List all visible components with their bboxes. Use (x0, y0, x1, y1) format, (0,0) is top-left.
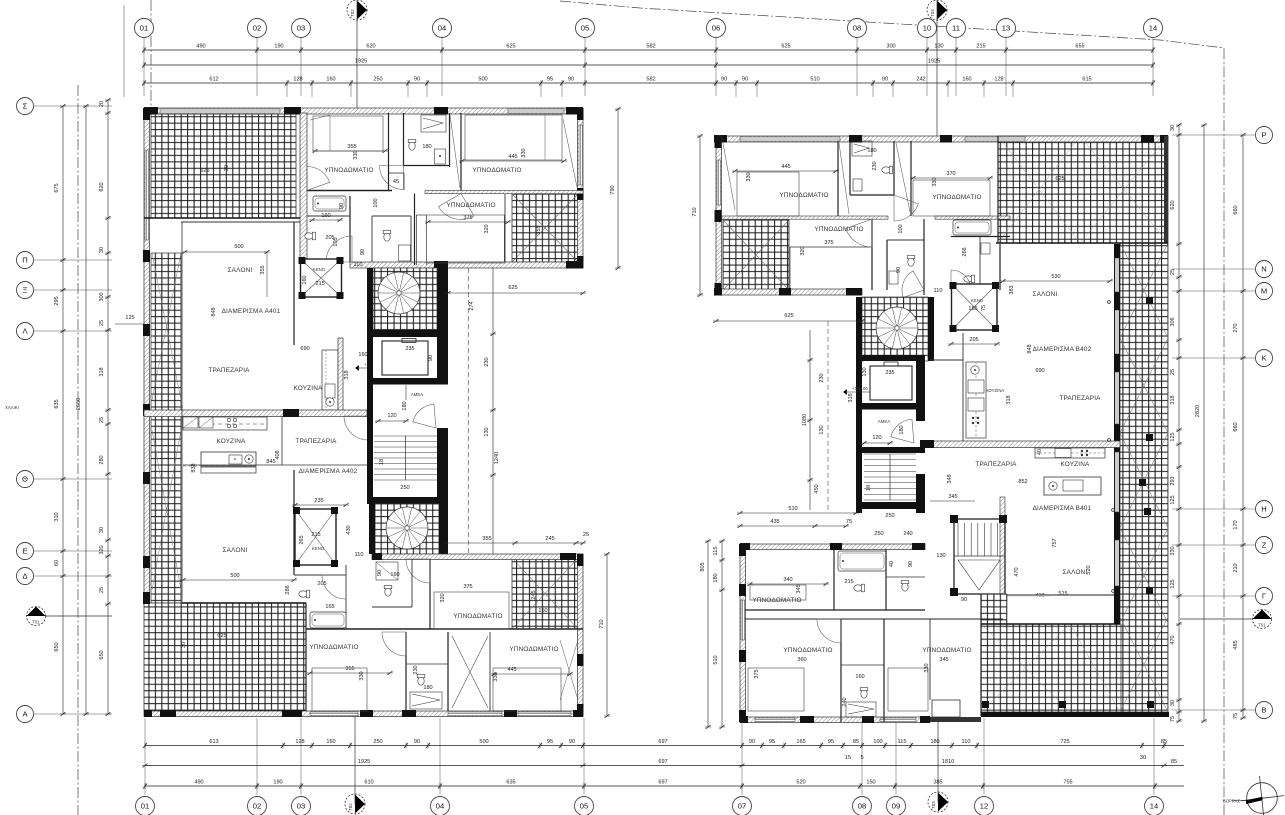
svg-text:370: 370 (946, 171, 955, 177)
svg-text:230: 230 (872, 161, 878, 170)
svg-text:Ε: Ε (22, 547, 27, 556)
svg-text:180: 180 (423, 685, 432, 691)
svg-text:90: 90 (896, 267, 902, 273)
svg-text:40: 40 (1037, 449, 1043, 455)
svg-text:128: 128 (994, 77, 1003, 83)
svg-text:180: 180 (867, 148, 876, 154)
svg-text:ΚΟΥΖΙΝΑ: ΚΟΥΖΙΝΑ (1060, 461, 1090, 468)
svg-text:165: 165 (325, 604, 334, 610)
svg-text:Σ: Σ (23, 102, 28, 111)
svg-text:490: 490 (194, 780, 203, 786)
svg-text:170: 170 (1233, 520, 1239, 529)
svg-text:250: 250 (874, 531, 883, 537)
svg-text:230: 230 (484, 357, 490, 366)
svg-text:T02: T02 (350, 9, 355, 17)
svg-text:160: 160 (326, 739, 335, 745)
svg-text:128: 128 (295, 739, 304, 745)
svg-text:01: 01 (141, 802, 149, 811)
svg-text:1240: 1240 (494, 452, 500, 464)
svg-text:330: 330 (932, 177, 938, 186)
svg-text:150: 150 (538, 608, 547, 614)
svg-text:ΥΠΝΟΔΩΜΑΤΙΟ: ΥΠΝΟΔΩΜΑΤΙΟ (814, 226, 863, 233)
svg-text:620: 620 (366, 44, 375, 50)
svg-text:805: 805 (700, 562, 706, 571)
svg-text:838: 838 (191, 463, 197, 472)
svg-text:ΣΑΛΟΝΙ: ΣΑΛΟΝΙ (223, 547, 248, 554)
svg-text:ΥΠΝΟΔΩΜΑΤΙΟ: ΥΠΝΟΔΩΜΑΤΙΟ (324, 167, 373, 174)
svg-text:235: 235 (314, 498, 323, 504)
svg-text:1925: 1925 (355, 59, 367, 65)
svg-text:215: 215 (976, 44, 985, 50)
svg-text:ΥΠΝΟΔΩΜΑΤΙΟ: ΥΠΝΟΔΩΜΑΤΙΟ (472, 167, 521, 174)
svg-text:318: 318 (344, 370, 350, 379)
svg-text:360: 360 (797, 657, 806, 663)
svg-text:690: 690 (300, 346, 309, 352)
svg-text:Δ: Δ (22, 572, 27, 581)
svg-text:180: 180 (422, 144, 431, 150)
svg-text:15: 15 (845, 755, 851, 761)
svg-text:130: 130 (934, 44, 943, 50)
svg-text:45: 45 (393, 179, 399, 185)
svg-text:615: 615 (1082, 77, 1091, 83)
svg-text:150: 150 (866, 780, 875, 786)
svg-text:697: 697 (658, 780, 667, 786)
svg-text:130: 130 (936, 553, 945, 559)
svg-text:625: 625 (508, 285, 517, 291)
svg-text:03: 03 (297, 802, 305, 811)
svg-text:293: 293 (1170, 476, 1176, 485)
svg-text:06: 06 (712, 24, 720, 33)
svg-text:215: 215 (844, 579, 853, 585)
svg-text:90: 90 (428, 355, 434, 361)
svg-text:320: 320 (800, 246, 806, 255)
svg-text:60: 60 (54, 560, 60, 566)
svg-text:205: 205 (317, 581, 326, 587)
svg-text:1925: 1925 (358, 759, 370, 765)
svg-text:330: 330 (746, 172, 752, 181)
svg-text:ΣΑΛΟΝΙ: ΣΑΛΟΝΙ (228, 267, 253, 274)
svg-text:ΥΠΝΟΔΩΜΑΤΙΟ: ΥΠΝΟΔΩΜΑΤΙΟ (932, 194, 981, 201)
svg-text:ΔΙΑΜΕΡΙΣΜΑ A402: ΔΙΑΜΕΡΙΣΜΑ A402 (299, 468, 358, 475)
svg-text:190: 190 (274, 44, 283, 50)
svg-text:318: 318 (1170, 395, 1176, 404)
svg-text:270: 270 (1233, 323, 1239, 332)
svg-text:90: 90 (360, 249, 366, 255)
svg-text:95: 95 (769, 739, 775, 745)
svg-text:12: 12 (980, 802, 988, 811)
svg-text:500: 500 (234, 244, 243, 250)
svg-text:ΒΟΡΡΑΣ: ΒΟΡΡΑΣ (1223, 799, 1240, 804)
svg-text:500: 500 (478, 77, 487, 83)
svg-text:14: 14 (1149, 24, 1157, 33)
svg-text:852: 852 (1018, 479, 1027, 485)
svg-text:306: 306 (1170, 317, 1176, 326)
svg-text:310: 310 (54, 512, 60, 521)
svg-text:165: 165 (796, 739, 805, 745)
svg-text:250: 250 (400, 485, 409, 491)
svg-text:T03: T03 (931, 801, 936, 809)
svg-text:90: 90 (882, 77, 888, 83)
svg-text:T02: T02 (348, 803, 353, 811)
svg-text:345: 345 (796, 584, 802, 593)
svg-text:160: 160 (358, 352, 367, 358)
svg-text:25: 25 (583, 532, 589, 538)
svg-text:320: 320 (99, 545, 105, 554)
svg-text:120: 120 (872, 435, 881, 441)
svg-text:348: 348 (947, 474, 953, 483)
svg-text:610: 610 (364, 780, 373, 786)
svg-text:ΔΙΑΜΕΡΙΣΜΑ B402: ΔΙΑΜΕΡΙΣΜΑ B402 (1033, 346, 1092, 353)
svg-text:125: 125 (1170, 432, 1176, 441)
svg-text:250: 250 (885, 513, 894, 519)
svg-text:ΧΑΛΙΚΙ: ΧΑΛΙΚΙ (5, 405, 19, 410)
svg-text:510: 510 (788, 506, 797, 512)
svg-text:355: 355 (345, 666, 354, 672)
svg-text:90: 90 (569, 739, 575, 745)
svg-text:30: 30 (99, 527, 105, 533)
svg-text:660: 660 (1233, 422, 1239, 431)
svg-text:650: 650 (54, 642, 60, 651)
svg-text:P: P (1261, 131, 1266, 140)
svg-text:30: 30 (99, 247, 105, 253)
svg-text:375: 375 (824, 240, 833, 246)
svg-text:90: 90 (721, 77, 727, 83)
svg-text:110: 110 (962, 739, 971, 745)
svg-text:280: 280 (99, 455, 105, 464)
svg-text:295: 295 (54, 296, 60, 305)
svg-text:235: 235 (885, 370, 894, 376)
svg-text:345: 345 (939, 657, 948, 663)
svg-text:180: 180 (713, 573, 719, 582)
svg-text:B: B (1261, 706, 1266, 715)
svg-text:ΥΠΝΟΔΩΜΑΤΙΟ: ΥΠΝΟΔΩΜΑΤΙΟ (509, 646, 558, 653)
svg-text:530: 530 (1051, 274, 1060, 280)
svg-text:510: 510 (810, 77, 819, 83)
svg-text:115: 115 (898, 739, 907, 745)
svg-text:470: 470 (1170, 635, 1176, 644)
svg-text:H: H (1261, 505, 1266, 514)
svg-text:345: 345 (948, 494, 957, 500)
svg-text:620: 620 (99, 182, 105, 191)
svg-text:435: 435 (770, 519, 779, 525)
svg-text:160: 160 (962, 77, 971, 83)
svg-text:100: 100 (898, 224, 904, 233)
svg-text:1925: 1925 (928, 59, 940, 65)
svg-text:110: 110 (355, 552, 364, 558)
svg-text:ΑΜΕΑ: ΑΜΕΑ (411, 392, 423, 397)
svg-text:20: 20 (99, 101, 105, 107)
svg-text:445: 445 (508, 154, 517, 160)
svg-text:ΥΠΝΟΔΩΜΑΤΙΟ: ΥΠΝΟΔΩΜΑΤΙΟ (309, 644, 358, 651)
svg-text:190: 190 (273, 780, 282, 786)
svg-text:ΥΠΝΟΔΩΜΑΤΙΟ: ΥΠΝΟΔΩΜΑΤΙΟ (779, 192, 828, 199)
svg-text:25: 25 (99, 417, 105, 423)
svg-text:30: 30 (181, 642, 187, 648)
svg-text:115: 115 (713, 547, 719, 556)
svg-text:845: 845 (266, 459, 275, 465)
svg-text:90: 90 (339, 203, 345, 209)
svg-text:848: 848 (1027, 344, 1033, 353)
svg-text:710: 710 (599, 619, 605, 628)
svg-text:120: 120 (387, 413, 396, 419)
svg-text:180: 180 (899, 425, 905, 434)
svg-text:205: 205 (969, 337, 978, 343)
svg-text:330: 330 (1170, 546, 1176, 555)
svg-text:Θ: Θ (22, 475, 28, 484)
svg-text:755: 755 (1063, 780, 1072, 786)
svg-text:02: 02 (253, 24, 261, 33)
svg-text:07: 07 (738, 802, 746, 811)
svg-text:ΚΕΝΟ: ΚΕΝΟ (971, 298, 984, 303)
svg-text:25: 25 (1170, 369, 1176, 375)
svg-text:625: 625 (1055, 176, 1064, 182)
svg-text:635: 635 (506, 780, 515, 786)
svg-text:125: 125 (125, 315, 134, 321)
svg-text:320: 320 (484, 224, 490, 233)
svg-text:128: 128 (293, 77, 302, 83)
svg-text:625: 625 (781, 44, 790, 50)
svg-text:130: 130 (819, 425, 825, 434)
svg-text:470: 470 (1014, 567, 1020, 576)
svg-text:210: 210 (1233, 563, 1239, 572)
svg-text:445: 445 (781, 164, 790, 170)
svg-text:650: 650 (99, 650, 105, 659)
svg-text:25: 25 (99, 320, 105, 326)
svg-text:75: 75 (1233, 713, 1239, 719)
svg-text:620: 620 (1170, 200, 1176, 209)
svg-text:M: M (1261, 287, 1267, 296)
svg-text:245: 245 (545, 536, 554, 542)
svg-text:582: 582 (646, 77, 655, 83)
svg-text:30: 30 (224, 165, 230, 171)
svg-text:03: 03 (297, 24, 305, 33)
svg-text:485: 485 (1233, 640, 1239, 649)
svg-text:286: 286 (285, 585, 291, 594)
svg-text:85: 85 (1171, 759, 1177, 765)
svg-text:110: 110 (354, 262, 363, 268)
svg-text:242: 242 (916, 77, 925, 83)
svg-text:230: 230 (413, 665, 419, 674)
svg-text:375: 375 (463, 584, 472, 590)
svg-text:ΤΡΑΠΕΖΑΡΙΑ: ΤΡΑΠΕΖΑΡΙΑ (208, 367, 250, 374)
svg-text:11: 11 (952, 24, 960, 33)
svg-text:675: 675 (54, 183, 60, 192)
svg-text:330: 330 (359, 671, 365, 680)
svg-text:274: 274 (469, 301, 475, 310)
svg-text:725: 725 (1060, 739, 1069, 745)
svg-text:90: 90 (377, 570, 383, 576)
svg-text:300: 300 (886, 44, 895, 50)
svg-text:215: 215 (311, 532, 320, 538)
svg-text:90: 90 (908, 561, 914, 567)
svg-text:30: 30 (1170, 700, 1176, 706)
svg-text:613: 613 (209, 739, 218, 745)
svg-text:18: 18 (866, 485, 872, 491)
svg-text:355: 355 (260, 265, 266, 274)
svg-text:1080: 1080 (802, 414, 808, 426)
svg-text:ΚΕΝΟ: ΚΕΝΟ (313, 267, 326, 272)
svg-text:500: 500 (230, 573, 239, 579)
svg-text:697: 697 (658, 759, 667, 765)
svg-text:655: 655 (1075, 44, 1084, 50)
svg-text:245: 245 (531, 590, 537, 599)
svg-text:ΚΕΝΟ: ΚΕΝΟ (312, 546, 325, 551)
svg-text:Γ: Γ (1262, 592, 1266, 601)
svg-text:300: 300 (99, 292, 105, 301)
svg-text:330: 330 (493, 672, 499, 681)
svg-text:04: 04 (438, 24, 446, 33)
svg-text:710: 710 (692, 207, 698, 216)
svg-text:T01: T01 (1258, 623, 1266, 628)
svg-text:160: 160 (302, 275, 308, 284)
svg-text:430: 430 (346, 525, 352, 534)
svg-text:2660: 2660 (76, 398, 82, 410)
svg-text:612: 612 (209, 77, 218, 83)
svg-text:510: 510 (713, 655, 719, 664)
svg-text:ΥΠΝΟΔΩΜΑΤΙΟ: ΥΠΝΟΔΩΜΑΤΙΟ (453, 613, 502, 620)
svg-text:408: 408 (275, 450, 281, 459)
svg-text:25: 25 (1170, 269, 1176, 275)
svg-text:Z: Z (1262, 541, 1267, 550)
svg-text:355: 355 (347, 144, 356, 150)
svg-text:185: 185 (968, 306, 977, 312)
svg-text:240: 240 (903, 531, 912, 537)
svg-text:375: 375 (463, 215, 472, 221)
svg-text:18: 18 (379, 459, 385, 465)
svg-text:ΥΠΝΟΔΩΜΑΤΙΟ: ΥΠΝΟΔΩΜΑΤΙΟ (752, 597, 801, 604)
svg-text:05: 05 (580, 802, 588, 811)
svg-text:355: 355 (482, 536, 491, 542)
svg-text:Π: Π (22, 256, 27, 265)
svg-text:660: 660 (1233, 205, 1239, 214)
svg-text:625: 625 (200, 168, 209, 174)
svg-text:ΤΡΑΠΕΖΑΡΙΑ: ΤΡΑΠΕΖΑΡΙΑ (975, 461, 1017, 468)
svg-text:500: 500 (479, 739, 488, 745)
svg-text:330: 330 (353, 150, 359, 159)
svg-text:+194.00: +194.00 (852, 386, 868, 391)
svg-text:09: 09 (892, 802, 900, 811)
svg-text:85: 85 (1161, 739, 1167, 745)
svg-text:757: 757 (1052, 538, 1058, 547)
svg-text:690: 690 (1035, 368, 1044, 374)
svg-text:ΑΜΕΑ: ΑΜΕΑ (878, 419, 890, 424)
svg-text:14: 14 (1150, 802, 1158, 811)
svg-text:ΚΟΥΖΙΝΑ: ΚΟΥΖΙΝΑ (986, 388, 1005, 393)
svg-text:450: 450 (814, 484, 820, 493)
svg-text:697: 697 (658, 739, 667, 745)
svg-text:ΔΙΑΜΕΡΙΣΜΑ B401: ΔΙΑΜΕΡΙΣΜΑ B401 (1033, 505, 1092, 512)
svg-text:266: 266 (962, 247, 968, 256)
svg-text:520: 520 (796, 780, 805, 786)
svg-text:ΤΡΑΠΕΖΑΡΙΑ: ΤΡΑΠΕΖΑΡΙΑ (295, 438, 337, 445)
svg-text:100: 100 (873, 739, 882, 745)
svg-text:04: 04 (436, 802, 444, 811)
svg-text:330: 330 (924, 663, 930, 672)
svg-text:490: 490 (196, 44, 205, 50)
svg-text:383: 383 (1009, 285, 1015, 294)
svg-text:340: 340 (783, 577, 792, 583)
svg-text:105: 105 (333, 237, 339, 246)
svg-text:ΚΟΥΖΙΝΑ: ΚΟΥΖΙΝΑ (216, 438, 246, 445)
svg-text:40: 40 (889, 561, 895, 567)
svg-text:T03: T03 (930, 9, 935, 17)
svg-text:Ξ: Ξ (23, 286, 28, 295)
svg-text:2820: 2820 (1195, 405, 1201, 417)
svg-text:02: 02 (253, 802, 261, 811)
svg-text:1810: 1810 (942, 759, 954, 765)
svg-text:08: 08 (853, 24, 861, 33)
svg-text:K: K (1261, 354, 1266, 363)
svg-text:100: 100 (373, 198, 379, 207)
svg-text:265: 265 (299, 535, 305, 544)
svg-text:320: 320 (440, 593, 446, 602)
svg-text:ΔΙΑΜΕΡΙΣΜΑ A401: ΔΙΑΜΕΡΙΣΜΑ A401 (222, 308, 281, 315)
svg-text:125: 125 (1170, 495, 1176, 504)
svg-text:90: 90 (414, 77, 420, 83)
svg-text:215: 215 (315, 281, 324, 287)
svg-text:790: 790 (610, 185, 616, 194)
svg-text:75: 75 (846, 519, 852, 525)
svg-text:30: 30 (1170, 125, 1176, 131)
svg-text:90: 90 (749, 739, 755, 745)
svg-text:355: 355 (536, 225, 542, 234)
svg-text:625: 625 (784, 313, 793, 319)
svg-text:N: N (1261, 265, 1266, 274)
svg-text:75: 75 (981, 305, 987, 311)
svg-text:95: 95 (828, 739, 834, 745)
svg-text:318: 318 (1006, 395, 1012, 404)
svg-text:T01: T01 (32, 620, 40, 625)
svg-text:375: 375 (754, 669, 760, 678)
svg-text:160: 160 (326, 77, 335, 83)
svg-text:160: 160 (855, 674, 864, 680)
svg-text:95: 95 (547, 77, 553, 83)
svg-text:ΤΡΑΠΕΖΑΡΙΑ: ΤΡΑΠΕΖΑΡΙΑ (1059, 395, 1101, 402)
svg-text:130: 130 (484, 427, 490, 436)
svg-text:330: 330 (521, 148, 527, 157)
svg-text:230: 230 (819, 373, 825, 382)
svg-text:625: 625 (506, 44, 515, 50)
svg-text:318: 318 (848, 393, 854, 402)
svg-text:ΣΑΛΟΝΙ: ΣΑΛΟΝΙ (1033, 291, 1058, 298)
svg-text:08: 08 (858, 802, 866, 811)
svg-text:250: 250 (373, 739, 382, 745)
svg-text:5: 5 (860, 755, 863, 761)
svg-text:30: 30 (1140, 755, 1146, 761)
svg-text:90: 90 (414, 739, 420, 745)
svg-text:13: 13 (1002, 24, 1010, 33)
svg-text:90: 90 (961, 597, 967, 603)
svg-text:ΚΟΥΖΙΝΑ: ΚΟΥΖΙΝΑ (293, 385, 323, 392)
svg-text:250: 250 (373, 77, 382, 83)
svg-text:235: 235 (405, 346, 414, 352)
svg-text:125: 125 (1170, 579, 1176, 588)
svg-text:318: 318 (99, 367, 105, 376)
svg-text:848: 848 (211, 307, 217, 316)
svg-text:180: 180 (402, 401, 408, 410)
svg-text:85: 85 (853, 739, 859, 745)
svg-text:635: 635 (54, 399, 60, 408)
svg-text:90: 90 (742, 77, 748, 83)
svg-text:10: 10 (923, 24, 931, 33)
svg-text:625: 625 (217, 633, 226, 639)
svg-text:75: 75 (1170, 716, 1176, 722)
svg-text:90: 90 (568, 77, 574, 83)
svg-text:582: 582 (646, 44, 655, 50)
svg-text:ΥΠΝΟΔΩΜΑΤΙΟ: ΥΠΝΟΔΩΜΑΤΙΟ (446, 202, 495, 209)
svg-text:130: 130 (862, 367, 868, 376)
svg-text:ΥΠΝΟΔΩΜΑΤΙΟ: ΥΠΝΟΔΩΜΑΤΙΟ (783, 647, 832, 654)
